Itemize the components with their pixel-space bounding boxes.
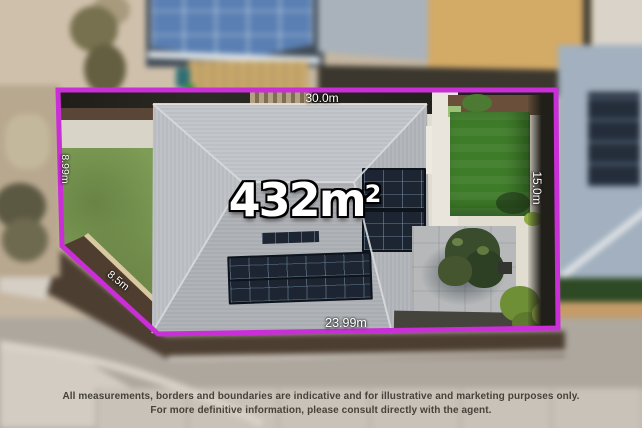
disclaimer: All measurements, borders and boundaries…	[0, 390, 642, 417]
aerial-property-photo: 30.0m 15.0m 23.99m 8.5m 8.99m 432m2 All …	[0, 0, 642, 428]
disclaimer-line-1: All measurements, borders and boundaries…	[0, 390, 642, 404]
dimension-label-right: 15.0m	[530, 171, 544, 204]
dimension-label-top: 30.0m	[305, 91, 338, 105]
dimension-label-left: 8.99m	[59, 154, 71, 183]
land-area-superscript: 2	[365, 180, 382, 208]
land-area-label: 432m2	[229, 173, 382, 227]
land-area-value: 432m	[229, 173, 365, 227]
dimension-label-bottom: 23.99m	[325, 316, 367, 330]
disclaimer-line-2: For more definitive information, please …	[0, 404, 642, 418]
